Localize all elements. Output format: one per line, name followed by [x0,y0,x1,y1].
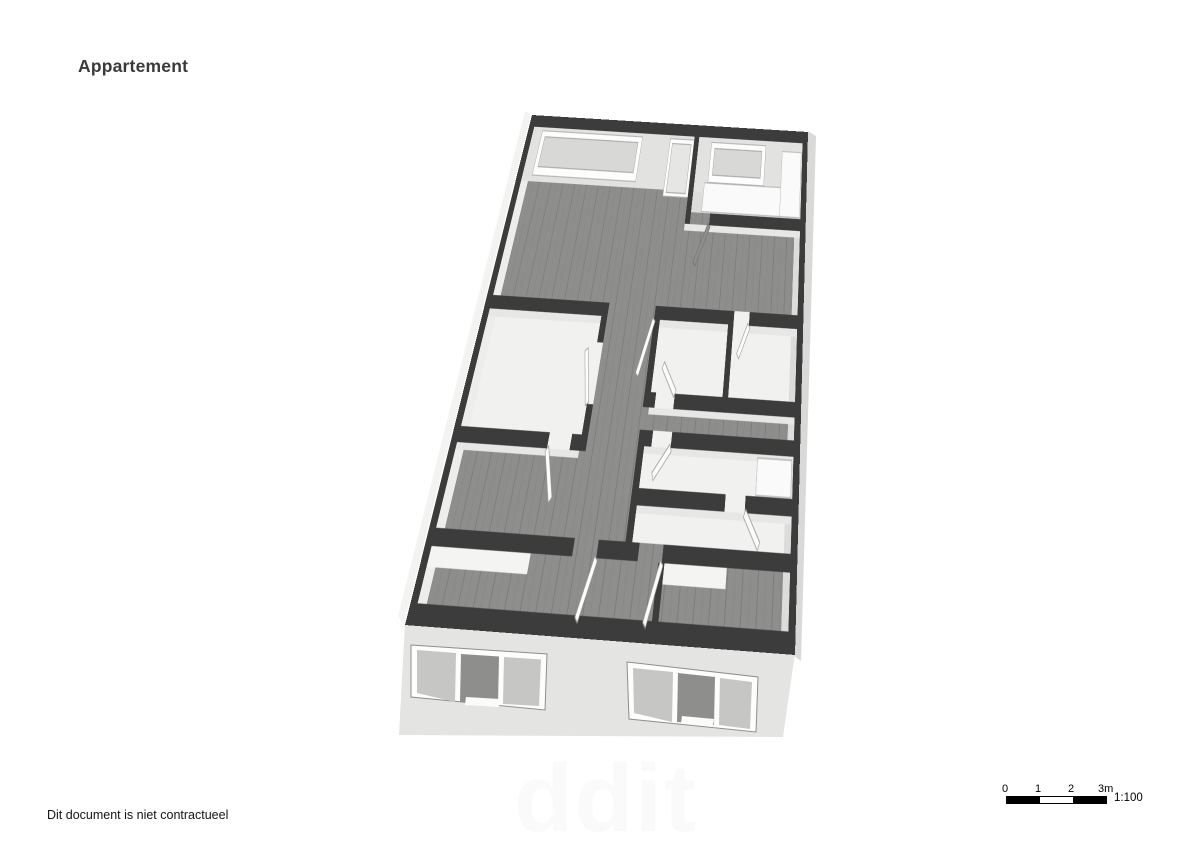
scale-label-0: 0 [1002,783,1008,795]
scale-label-1: 1 [1035,783,1041,795]
scale-ratio: 1:100 [1114,792,1143,804]
floorplan-page: Appartement ddit 0 1 2 3m 1:100 Dit docu… [0,0,1200,851]
scale-bar: 0 1 2 3m 1:100 [1004,783,1174,817]
scale-bar-segment [1007,797,1040,803]
scale-bar-segment [1073,797,1106,803]
scale-label-3m: 3m [1098,783,1113,795]
scale-bar-segment [1040,797,1073,803]
scale-label-2: 2 [1068,783,1074,795]
disclaimer-text: Dit document is niet contractueel [47,808,228,822]
scale-bar-graphic [1006,796,1107,804]
